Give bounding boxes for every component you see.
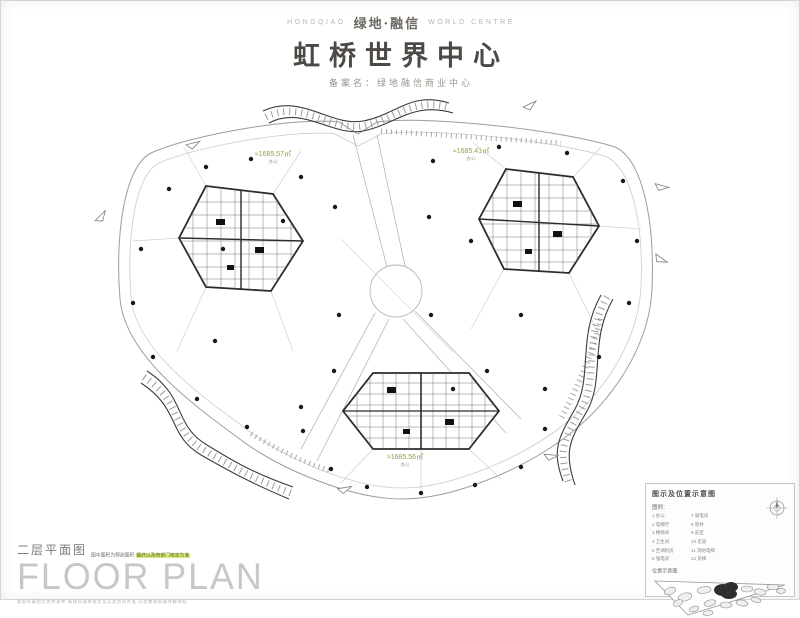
area-label-top-right: ≈1685.41㎡ <box>453 147 489 155</box>
legend-item: 10 走道 <box>691 539 715 546</box>
legend-column-2: 7 弱电间 8 管井 9 前室 10 走道 11 消防电梯 12 货梯 <box>691 512 723 564</box>
legend-item: 1 办公 <box>652 513 674 520</box>
legend-item: 6 强电间 <box>652 557 674 564</box>
legend-item: 11 消防电梯 <box>691 548 715 555</box>
brand-line: HONGQIAO 绿地·融信 WORLD CENTRE <box>1 13 800 32</box>
legend-item: 5 空调机房 <box>652 548 674 555</box>
legend-item: 8 管井 <box>691 522 715 529</box>
brand-right-text: WORLD CENTRE <box>428 19 515 26</box>
page-title: 虹桥世界中心 <box>1 34 800 73</box>
area-label-bottom: ≈1685.56㎡ <box>387 453 423 461</box>
legend-item: 2 电梯厅 <box>652 522 674 529</box>
area-sub-bottom: 办公 <box>401 461 410 468</box>
legend-item: 12 货梯 <box>691 557 715 564</box>
floor-plan-drawing: ≈1685.57㎡ 办公 ≈1685.41㎡ 办公 ≈1685.56㎡ 办公 <box>1 89 800 519</box>
central-atrium-circle <box>341 239 453 352</box>
footer: 二层平面图 图中面积为预测面积 最终以政府部门核定为准 FLOOR PLAN 本… <box>17 541 437 607</box>
tower-core-top-left <box>176 184 306 294</box>
area-sub-top-left: 办公 <box>269 158 278 165</box>
legend-item: 4 卫生间 <box>652 539 674 546</box>
legend-item: 3 楼梯间 <box>652 530 674 537</box>
legend-label: 图例： <box>652 502 774 510</box>
legend-column-1: 1 办公 2 电梯厅 3 楼梯间 4 卫生间 5 空调机房 6 强电间 <box>652 512 681 564</box>
site-location-thumbnail <box>652 576 788 618</box>
disclaimer-text: 本案所载图文仅供参考 具体以政府批文及买卖合同为准 开发商保留最终解释权 <box>17 598 311 604</box>
brand-left-text: HONGQIAO <box>287 19 346 26</box>
area-sub-top-right: 办公 <box>467 155 476 162</box>
header: HONGQIAO 绿地·融信 WORLD CENTRE 虹桥世界中心 备案名：绿… <box>1 13 800 89</box>
compass-rose-icon <box>765 496 789 520</box>
floor-plan-page: { "header": { "brand_left": "HONGQIAO", … <box>0 0 800 600</box>
tower-core-top-right <box>476 167 602 275</box>
area-label-top-left: ≈1685.57㎡ <box>255 150 291 158</box>
legend-item: 9 前室 <box>691 530 715 537</box>
legend-item: 7 弱电间 <box>691 513 715 520</box>
tower-core-bottom <box>341 371 501 451</box>
page-subtitle: 备案名：绿地融信商业中心 <box>1 76 800 89</box>
site-map-label: 位置示意图 <box>652 567 768 575</box>
legend-box: 图示及位置示意图 图例： 1 办公 2 电梯厅 3 楼梯间 4 卫生间 5 空调… <box>645 483 795 597</box>
floor-plan-title: FLOOR PLAN <box>17 559 424 594</box>
brand-logo-text: 绿地·融信 <box>354 13 421 32</box>
